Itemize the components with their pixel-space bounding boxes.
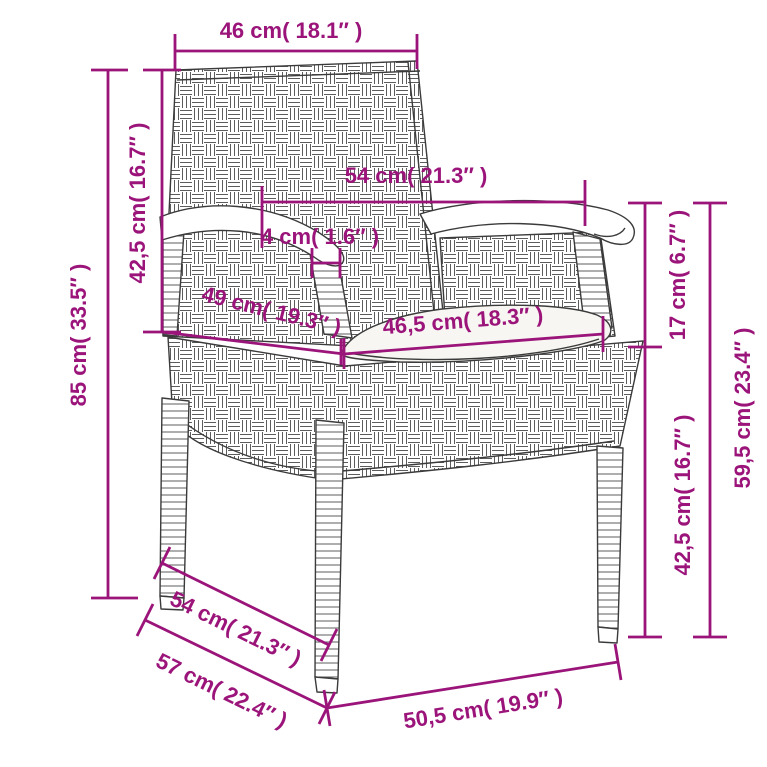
dim-back-width-label: 46 cm( 18.1″ )	[220, 18, 363, 43]
dim-armrest-height-label: 59,5 cm( 23.4″ )	[730, 328, 755, 489]
dim-armrest-width-label: 4 cm( 1.6″ )	[261, 224, 379, 249]
dim-armrest-span-label: 54 cm( 21.3″ )	[345, 163, 488, 188]
dim-backrest-height-label: 42,5 cm( 16.7″ )	[125, 123, 150, 284]
dim-arm-to-seat-label: 17 cm( 6.7″ )	[665, 210, 690, 340]
dimension-diagram: 46 cm( 18.1″ ) 85 cm( 33.5″ ) 42,5 cm( 1…	[0, 0, 767, 767]
chair-diagram-canvas: 46 cm( 18.1″ ) 85 cm( 33.5″ ) 42,5 cm( 1…	[0, 0, 767, 767]
dim-total-height-label: 85 cm( 33.5″ )	[66, 264, 91, 407]
chair-leg-right	[597, 446, 623, 629]
chair-foot-front-left	[315, 677, 338, 693]
dim-seat-height-label: 42,5 cm( 16.7″ )	[670, 415, 695, 576]
chair-foot-right	[598, 627, 618, 643]
